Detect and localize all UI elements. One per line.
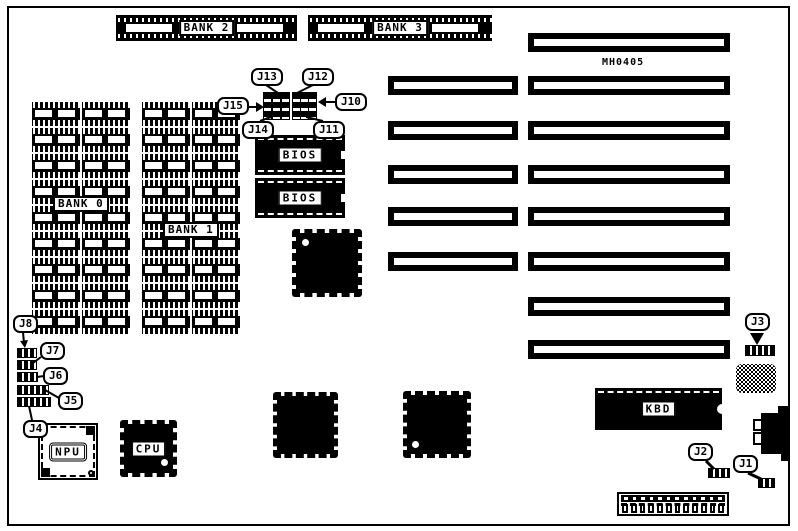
npu-pin1-mark: [88, 470, 94, 476]
dip-ram-socket: [192, 154, 240, 178]
power-socket: [631, 504, 637, 513]
power-socket: [710, 504, 716, 513]
power-socket: [675, 504, 681, 513]
bios-chip-2: BIOS: [255, 178, 345, 218]
bank1-label: BANK 1: [163, 222, 219, 238]
keyboard-din-connector-nub: [781, 452, 789, 461]
dip-ram-socket: [142, 180, 190, 204]
power-pin: [709, 496, 715, 501]
power-socket: [648, 504, 654, 513]
bios1-label: BIOS: [279, 148, 322, 163]
dip-ram-socket: [192, 284, 240, 308]
power-pin: [674, 496, 680, 501]
dip-ram-socket: [32, 128, 80, 152]
dip-ram-socket: [142, 284, 190, 308]
dip-ram-socket: [82, 128, 130, 152]
isa-slot-long: [528, 165, 730, 184]
power-connector: [617, 492, 729, 516]
isa-slot-short: [388, 76, 518, 95]
dip-ram-socket: [32, 232, 80, 256]
isa-slot-short: [388, 252, 518, 271]
pin1-dot: [161, 459, 168, 466]
dip-ram-socket: [142, 128, 190, 152]
jumper-header-j3: [745, 345, 775, 356]
dip-ram-socket: [82, 258, 130, 282]
dip-ram-socket: [32, 102, 80, 126]
isa-slot-long: [528, 252, 730, 271]
power-pin: [717, 496, 723, 501]
dip-ram-socket: [32, 310, 80, 334]
power-pin: [632, 496, 638, 501]
jumper-header-j10: [308, 92, 317, 120]
simm-socket-bank2: BANK 2: [116, 15, 297, 41]
isa-slot-short: [388, 121, 518, 140]
power-pin: [623, 496, 629, 501]
dip-ram-socket: [192, 258, 240, 282]
keyboard-din-connector-step: [778, 406, 789, 414]
callout-j8: J8: [13, 315, 38, 333]
bios-chip-1: BIOS: [255, 135, 345, 175]
callout-j6: J6: [43, 367, 68, 385]
jumper-header-j6: [17, 372, 38, 382]
din-mount-tab: [753, 419, 763, 431]
isa-slot-long: [528, 340, 730, 359]
cpu-label: CPU: [132, 441, 166, 456]
dip-ram-socket: [192, 310, 240, 334]
power-socket: [640, 504, 646, 513]
dip-ram-socket: [142, 310, 190, 334]
dip-ram-socket: [82, 284, 130, 308]
jumper-header-j7: [17, 360, 37, 370]
qfp-chip-chipset2: [273, 392, 338, 458]
dip-ram-socket: [32, 258, 80, 282]
model-number-text: MH0405: [602, 57, 644, 68]
callout-j1: J1: [733, 455, 758, 473]
npu-label: NPU: [51, 444, 85, 459]
jumper-header-j14: [272, 92, 281, 120]
jumper-header-j1: [758, 478, 775, 488]
power-pin: [640, 496, 646, 501]
isa-slot-short: [388, 207, 518, 226]
isa-slot-long: [528, 121, 730, 140]
callout-j4: J4: [23, 420, 48, 438]
pin1-dot: [302, 239, 309, 246]
keyboard-controller-chip: KBD: [595, 388, 722, 430]
dip-ram-socket: [192, 128, 240, 152]
power-socket: [666, 504, 672, 513]
power-pin: [692, 496, 698, 501]
bios2-label: BIOS: [279, 191, 322, 206]
dip-ram-socket: [82, 102, 130, 126]
isa-slot-long: [528, 33, 730, 52]
motherboard-diagram: BANK 2 BANK 3 MH0405 BANK 0 BANK 1 J13 J…: [0, 0, 798, 531]
power-connector-pins: [621, 495, 725, 502]
pin1-dot: [412, 441, 419, 448]
power-pin: [683, 496, 689, 501]
power-pin: [700, 496, 706, 501]
din-mount-tab: [753, 432, 763, 445]
bios-chip-notch: [341, 194, 345, 202]
dip-ram-socket: [142, 102, 190, 126]
callout-j2: J2: [688, 443, 713, 461]
bios-chip-notch: [341, 151, 345, 159]
solder-pad-area: [736, 364, 776, 393]
callout-j3: J3: [745, 313, 770, 331]
callout-j10: J10: [335, 93, 367, 111]
callout-j11: J11: [313, 121, 345, 139]
dip-ram-socket: [82, 310, 130, 334]
cpu-chip: CPU: [120, 420, 177, 477]
npu-corner-mark: [41, 468, 50, 477]
power-socket: [683, 504, 689, 513]
power-pin: [666, 496, 672, 501]
isa-slot-short: [388, 165, 518, 184]
dip-ram-socket: [142, 154, 190, 178]
isa-slot-long: [528, 297, 730, 316]
dip-ram-socket: [82, 154, 130, 178]
keyboard-din-connector: [761, 413, 789, 454]
dip-ram-socket: [82, 232, 130, 256]
power-socket: [622, 504, 628, 513]
power-socket: [718, 504, 724, 513]
npu-corner-mark: [86, 426, 95, 435]
isa-slot-long: [528, 76, 730, 95]
callout-j12: J12: [302, 68, 334, 86]
jumper-header-j13: [281, 92, 290, 120]
qfp-chip-chipset1: [292, 229, 362, 297]
kbd-label: KBD: [642, 402, 676, 417]
bank0-label: BANK 0: [53, 196, 109, 212]
dip-ram-socket: [192, 180, 240, 204]
dip-ram-socket: [32, 284, 80, 308]
dip-ram-socket: [32, 154, 80, 178]
jumper-header-j15: [263, 92, 272, 120]
power-pin: [649, 496, 655, 501]
jumper-header-j4: [17, 397, 51, 407]
jumper-header-j8: [17, 348, 37, 358]
kbd-chip-notch: [717, 404, 727, 414]
power-socket: [692, 504, 698, 513]
bank3-label: BANK 3: [372, 20, 428, 36]
isa-slot-long: [528, 207, 730, 226]
callout-j15: J15: [217, 97, 249, 115]
callout-j13: J13: [251, 68, 283, 86]
dip-ram-socket: [142, 258, 190, 282]
callout-j5: J5: [58, 392, 83, 410]
qfp-chip-chipset3: [403, 391, 471, 458]
power-connector-sockets: [622, 504, 724, 513]
power-socket: [701, 504, 707, 513]
callout-j7: J7: [40, 342, 65, 360]
power-socket: [657, 504, 663, 513]
simm-socket-bank3: BANK 3: [308, 15, 492, 41]
power-pin: [657, 496, 663, 501]
jumper-header-j5: [17, 385, 49, 395]
bank2-label: BANK 2: [179, 20, 235, 36]
jumper-header-j2: [708, 468, 730, 478]
callout-j14: J14: [242, 121, 274, 139]
